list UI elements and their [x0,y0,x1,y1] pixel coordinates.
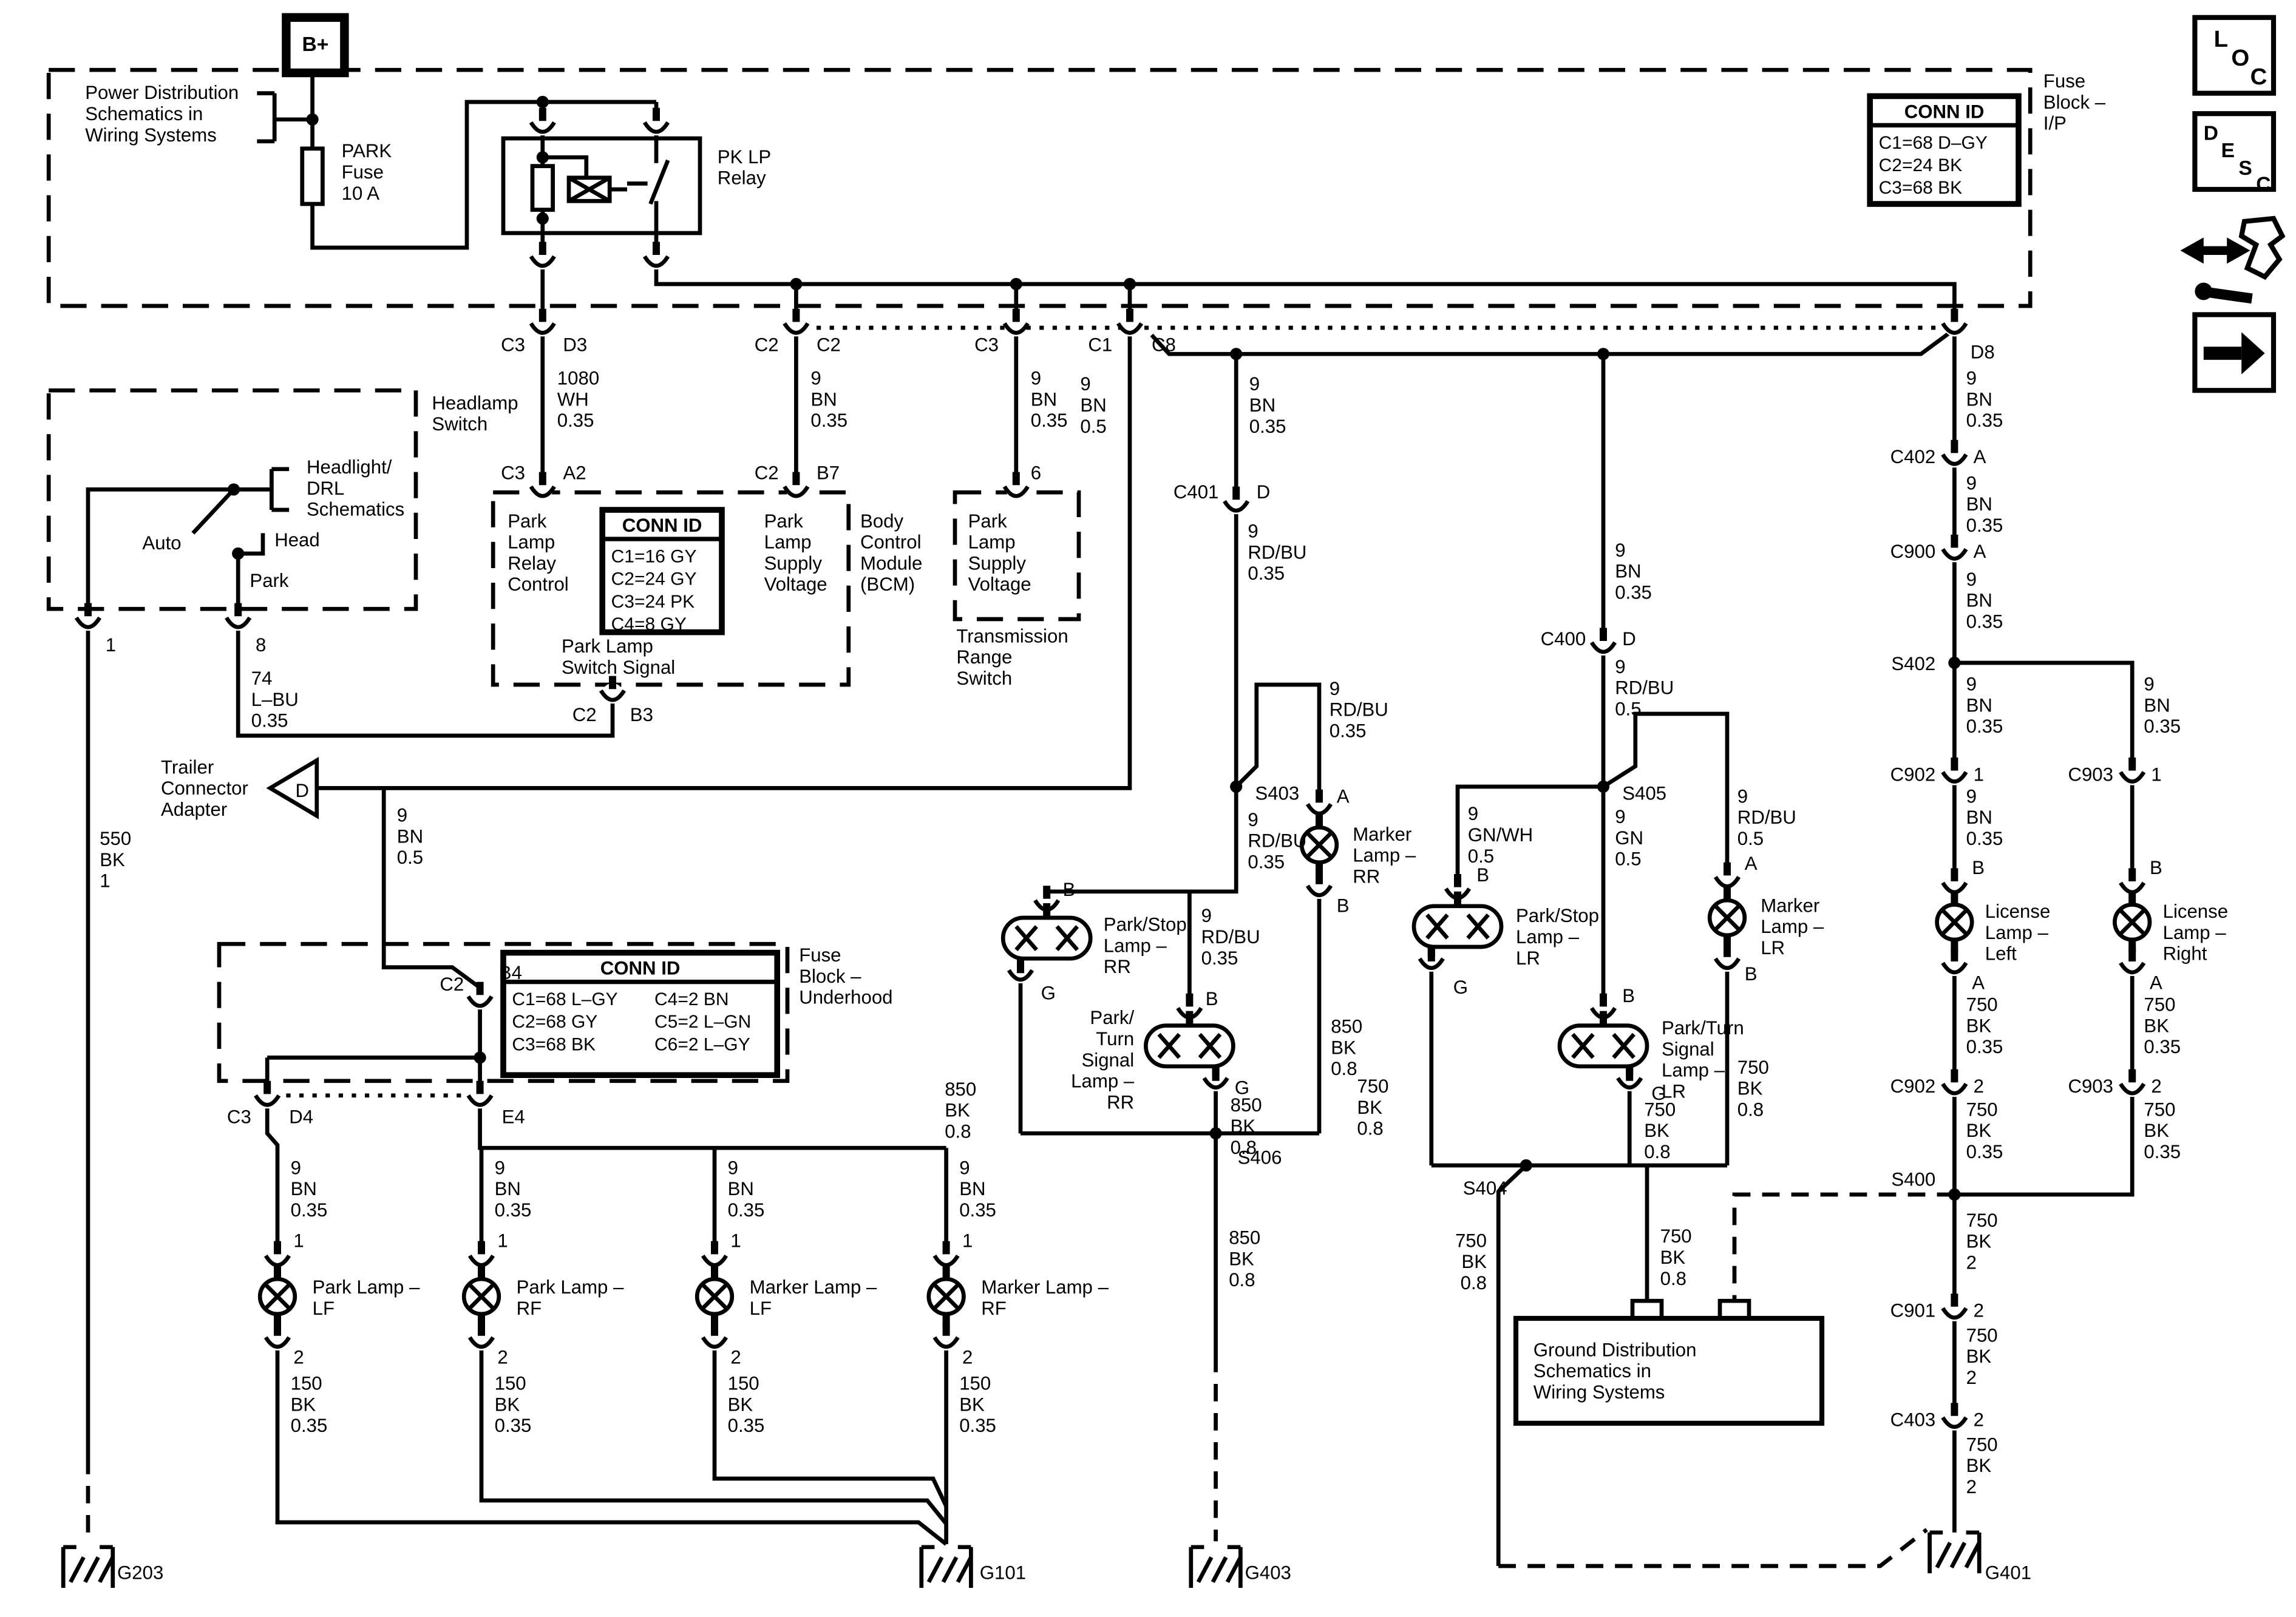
diagram-label: D [1257,481,1271,503]
diagram-label: A2 [563,463,586,484]
diagram-label: FuseBlock –Underhood [799,944,892,1008]
diagram-label: LicenseLamp –Left [1985,901,2050,964]
ground-icon [63,1547,113,1588]
conn-id-row: C2=68 GY [512,1012,597,1032]
diagram-label: C3 [974,334,999,355]
diagram-label: 550BK1 [100,828,131,892]
diagram-label: FuseBlock –I/P [2043,70,2106,134]
diagram-label: Park Lamp –RF [517,1276,624,1319]
diagram-label: C [2256,173,2271,195]
diagram-label: E [2221,140,2235,162]
splice-dot [1948,657,1960,669]
diagram-label: B7 [817,463,840,484]
diagram-label: 750BK0.8 [1660,1225,1692,1289]
diagram-label: C902 [1890,764,1936,785]
diagram-label: C401 [1173,481,1219,503]
diagram-label: 750BK0.8 [1357,1076,1388,1139]
diagram-label: 2 [1974,1076,1984,1097]
diagram-label: MarkerLamp –LR [1761,895,1824,958]
diagram-label: B [1622,985,1635,1006]
diagram-label: A [1337,785,1350,807]
diagram-label: 9BN0.35 [291,1157,328,1221]
diagram-label: 1 [293,1230,304,1251]
conn-id-row: C1=68 D–GY [1879,133,1988,153]
diagram-label: Park/StopLamp –LR [1516,905,1599,969]
diagram-label: C3 [501,334,525,355]
diagram-label: D4 [289,1106,313,1127]
conn-id-row: C6=2 L–GY [654,1034,750,1054]
diagram-label: L [2214,26,2228,52]
diagram-label: HeadlampSwitch [432,392,518,435]
ground-icon [1191,1547,1241,1588]
splice-dot [537,212,549,225]
diagram-label: C403 [1890,1409,1936,1431]
diagram-label: 9BN0.5 [397,805,423,869]
conn-id-row: C2=24 GY [611,569,697,589]
diagram-label: B+ [302,33,328,56]
diagram-label: LicenseLamp –Right [2163,901,2228,964]
front-lamp-feed-wires [267,1101,946,1242]
splice-dot [1210,1127,1222,1139]
diagram-label: 9GN/WH0.5 [1468,803,1533,867]
splice-dot [1230,348,1242,360]
diagram-label: Park LampSwitch Signal [562,636,675,678]
diagram-label: S406 [1238,1147,1282,1168]
conn-id-row: C1=68 L–GY [512,989,617,1009]
conn-id-header: CONN ID [1904,101,1985,122]
diagram-label: G [1041,982,1056,1003]
diagram-label: 9GN0.5 [1615,806,1643,870]
park-fuse-symbol [302,149,323,204]
diagram-label: BodyControlModule(BCM) [860,510,922,595]
diagram-label: B [1063,879,1076,900]
diagram-label: 850BK0.8 [1229,1227,1260,1291]
dual-lamp-icon [1414,906,1501,947]
diagram-label: 9BN0.35 [1966,472,2003,536]
conn-id-header: CONN ID [622,515,702,536]
diagram-label: 2 [730,1346,741,1368]
diagram-label: 750BK2 [1966,1324,1998,1388]
diagram-label: 9BN0.35 [1615,540,1652,603]
diagram-label: G401 [1985,1562,2031,1584]
diagram-label: 9RD/BU0.35 [1330,678,1388,742]
diagram-label: B [2150,857,2162,878]
diagram-label: C2 [755,334,779,355]
diagram-label: 1 [962,1230,973,1251]
splice-dot [1948,1188,1960,1201]
diagram-label: D [296,780,310,801]
diagram-label: 2 [1974,1409,1984,1431]
s404-ground-run-dashed [1498,1530,1927,1566]
diagram-label: B [1972,857,1985,878]
diagram-label: 1 [106,634,116,656]
diagram-label: G101 [980,1562,1026,1584]
diagram-label: Park/StopLamp –RR [1104,914,1187,978]
splice-dot [790,278,802,290]
diagram-label: A [1972,972,1985,994]
diagram-label: Marker Lamp –RF [981,1276,1109,1319]
diagram-label: C [2250,64,2267,90]
diagram-label: 9BN0.35 [1966,674,2003,737]
diagram-label: A [1745,853,1758,874]
diagram-label: 2 [2151,1076,2161,1097]
conn-id-row: C1=16 GY [611,546,697,566]
diagram-label: MarkerLamp –RR [1353,824,1416,887]
diagram-label: G403 [1245,1562,1291,1584]
diagram-label: 9BN0.35 [810,368,847,432]
arrow-shaft [2198,246,2241,255]
diagram-label: C2 [755,463,779,484]
diagram-label: TransmissionRangeSwitch [956,625,1068,689]
diagram-label: 9BN0.35 [1966,368,2003,432]
diagram-label: Head [274,529,320,551]
conn-id-row: C4=8 GY [611,614,687,634]
wiring-diagram-page: CONN IDC1=68 D–GYC2=24 BKC3=68 BKCONN ID… [0,0,2296,1617]
diagram-label: 150BK0.35 [291,1373,328,1437]
diagram-label: 1 [2151,764,2161,785]
splice-dot [537,96,549,108]
diagram-label: 150BK0.35 [495,1373,532,1437]
relay-coil-resistor [532,166,553,210]
diagram-label: C2 [817,334,841,355]
diagram-label: 1 [730,1230,741,1251]
diagram-label: C2 [440,974,464,995]
diagram-label: S400 [1891,1169,1935,1190]
diagram-label: ParkLampSupplyVoltage [968,510,1031,595]
conn-id-row: C4=2 BN [654,989,729,1009]
splice-dot [537,151,549,163]
diagram-label: 9BN0.35 [2144,674,2181,737]
diagram-label: C903 [2068,1076,2113,1097]
diagram-label: D [2204,122,2218,144]
diagram-label: C902 [1890,1076,1936,1097]
diagram-label: S [2238,157,2252,180]
trailer-connector-adapter-triangle [270,761,317,816]
diagram-label: 1 [1974,764,1984,785]
diagram-label: 750BK0.8 [1455,1230,1487,1293]
diagram-label: PK LPRelay [718,146,771,189]
splice-dot [228,483,240,495]
front-lamp-ground-wires [277,1351,946,1544]
diagram-label: 1 [497,1230,508,1251]
diagram-label: S405 [1622,783,1666,804]
diagram-label: PARKFuse10 A [342,140,392,204]
diagram-label: 8 [256,634,266,656]
diagram-label: Power DistributionSchematics inWiring Sy… [85,82,239,146]
diagram-label: 750BK0.35 [1966,1099,2003,1162]
diagram-label: 750BK2 [1966,1434,1998,1497]
diagram-label: 2 [1974,1300,1984,1321]
diagram-label: 9RD/BU0.35 [1201,905,1260,969]
next-arrow-head [2241,332,2264,375]
rear-left-wires [1432,654,1727,1566]
diagram-label: Headlight/DRLSchematics [307,456,404,520]
diagram-label: S403 [1255,783,1299,804]
next-arrow-shaft [2204,347,2241,360]
diagram-label: 9BN0.35 [495,1157,532,1221]
splice-dot [1597,348,1609,360]
diagram-label: C8 [1152,334,1176,355]
diagram-label: B [1476,864,1489,886]
splice-dot [474,1051,486,1063]
rear-feed-jumper-wires [1152,329,1954,636]
diagram-label: 750BK0.35 [2144,994,2181,1058]
diagram-label: 9BN0.5 [1080,373,1106,437]
diagram-label: 9BN0.35 [1966,785,2003,849]
conn-id-row: C5=2 L–GN [654,1012,751,1032]
diagram-label: D [1622,628,1636,649]
diagram-label: Park [250,570,289,591]
diagram-label: 750BK0.35 [2144,1099,2181,1162]
diagram-label: ParkLampSupplyVoltage [764,510,827,595]
diagram-label: B3 [630,704,653,725]
diagram-label: A [1974,541,1986,562]
diagram-label: 9RD/BU0.35 [1248,809,1306,873]
ground-icon [922,1547,971,1588]
diagram-label: C402 [1890,446,1936,467]
diagram-label: Auto [142,532,181,554]
splice-dot [1010,278,1022,290]
diagram-label: D3 [563,334,587,355]
ground-icon [1930,1533,1980,1573]
diagram-label: 150BK0.35 [959,1373,996,1437]
diagram-label: O [2231,45,2249,71]
diagram-label: 9BN0.35 [959,1157,996,1221]
diagram-label: 9BN0.35 [1249,373,1286,437]
ip-bus-wires [543,233,1955,324]
diagram-label: G203 [117,1562,163,1584]
diagram-label: Park/TurnSignalLamp –RR [1071,1007,1135,1113]
dual-lamp-icon [1146,1026,1233,1066]
dual-lamp-icon [1003,918,1090,958]
diagram-label: 750BK0.8 [1644,1099,1676,1162]
conn-id-row: C3=24 PK [611,592,695,612]
diagram-label: 750BK0.8 [1737,1057,1769,1120]
diagram-label: 74L–BU0.35 [251,668,299,731]
diagram-label: C903 [2068,764,2113,785]
diagram-label: C2 [572,704,597,725]
diagram-label: 2 [962,1346,973,1368]
diagram-label: Park/TurnSignalLamp –LR [1662,1017,1744,1102]
diagram-label: 9RD/BU0.35 [1248,521,1306,585]
diagram-label: B [1337,895,1350,916]
conn-id-header: CONN ID [600,958,681,979]
diagram-label: A [2150,972,2162,994]
diagram-label: 9RD/BU0.5 [1615,656,1674,720]
s400-ground-distribution-dashed [1734,1195,1954,1301]
diagram-label: 850BK0.8 [945,1079,976,1142]
diagram-label: 150BK0.35 [728,1373,765,1437]
vehicle-outline-icon[interactable] [2241,219,2282,277]
text-label-layer: B+Power DistributionSchematics inWiring … [85,26,2271,1584]
diagram-label: C901 [1890,1300,1936,1321]
diagram-label: Park Lamp –LF [313,1276,420,1319]
splice-dot [307,114,319,126]
splice-dot [1124,278,1136,290]
diagram-label: B4 [499,962,522,983]
diagram-label: S404 [1463,1178,1507,1199]
diagram-label: B [1206,988,1218,1009]
conn-id-row: C3=68 BK [1879,178,1963,198]
dual-lamp-icon [1560,1026,1647,1066]
diagram-label: C3 [501,463,525,484]
diagram-label: 750BK0.35 [1966,994,2003,1058]
diagram-label: TrailerConnectorAdapter [161,756,248,820]
diagram-label: 9BN0.35 [1031,368,1068,432]
wrench-handle [2205,287,2252,303]
symbol-layer [63,96,2150,1588]
ip-to-bcm-wires [543,329,1016,481]
diagram-label: 9BN0.35 [1966,569,2003,632]
diagram-label: C400 [1541,628,1586,649]
diagram-label: G [1453,977,1468,998]
diagram-label: C1 [1088,334,1112,355]
conn-id-row: C3=68 BK [512,1034,596,1054]
diagram-label: ParkLampRelayControl [508,510,569,595]
diagram-label: D8 [1971,341,1995,362]
splice-dot [1597,781,1609,793]
diagram-label: 6 [1031,463,1041,484]
diagram-label: 850BK0.8 [1331,1016,1362,1080]
diagram-label: 1080WH0.35 [557,368,599,432]
diagram-label: S402 [1891,653,1935,674]
splice-dot [1520,1159,1532,1171]
splice-dot [232,547,244,560]
diagram-label: E4 [502,1106,525,1127]
diagram-label: Marker Lamp –LF [750,1276,877,1319]
diagram-label: 750BK2 [1966,1210,1998,1273]
diagram-label: 9BN0.35 [728,1157,765,1221]
diagram-label: C3 [227,1106,251,1127]
diagram-label: 9RD/BU0.5 [1737,785,1796,849]
diagram-label: 2 [497,1346,508,1368]
diagram-label: B [1745,963,1758,985]
conn-id-row: C2=24 BK [1879,155,1963,175]
ground-distribution-terminals [1632,1301,1749,1318]
diagram-label: A [1974,446,1986,467]
park-lamps-schematic: CONN IDC1=68 D–GYC2=24 BKC3=68 BKCONN ID… [0,0,2296,1617]
splice-dot [1230,781,1242,793]
diagram-label: 2 [293,1346,304,1368]
diagram-label: C900 [1890,541,1936,562]
